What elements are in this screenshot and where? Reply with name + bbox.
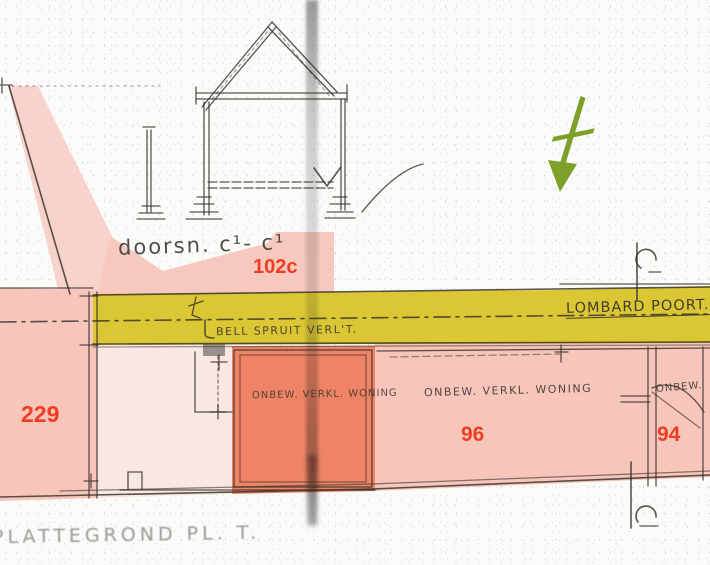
scanned-plan-sheet: doorsn. c¹- c¹ 102c LOMBARD POORT. BELL …	[0, 0, 710, 565]
label-102c: 102c	[253, 256, 298, 279]
bottom-caption: PLATTEGROND PL. T.	[0, 522, 260, 549]
label-94: 94	[657, 423, 680, 447]
street-name-label: LOMBARD POORT.	[566, 297, 710, 317]
north-arrow-icon	[548, 96, 595, 192]
label-96: 96	[461, 423, 484, 447]
label-229: 229	[21, 401, 59, 428]
section-marker-top	[636, 243, 661, 300]
section-drawing	[137, 22, 423, 219]
plan-linework	[0, 0, 710, 565]
section-marker-bottom	[631, 462, 658, 528]
street-note: BELL SPRUIT VERL'T.	[216, 323, 358, 338]
